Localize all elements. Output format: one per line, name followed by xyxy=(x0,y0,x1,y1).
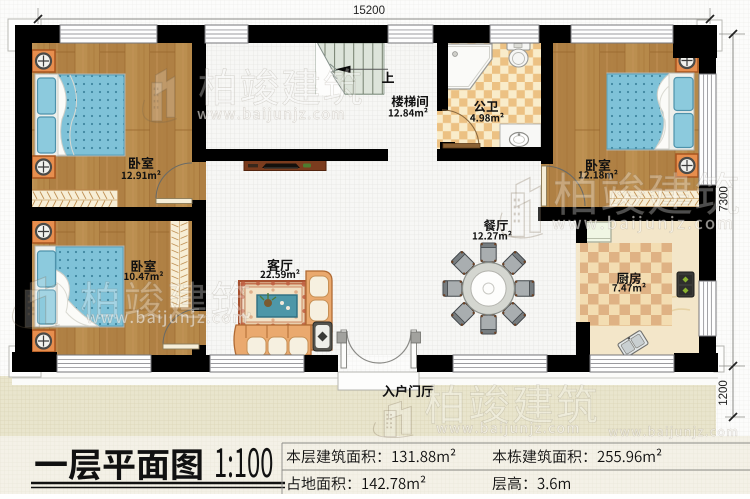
svg-text:1200: 1200 xyxy=(718,380,730,406)
svg-text:7300: 7300 xyxy=(719,186,731,212)
svg-text:15200: 15200 xyxy=(353,5,385,17)
